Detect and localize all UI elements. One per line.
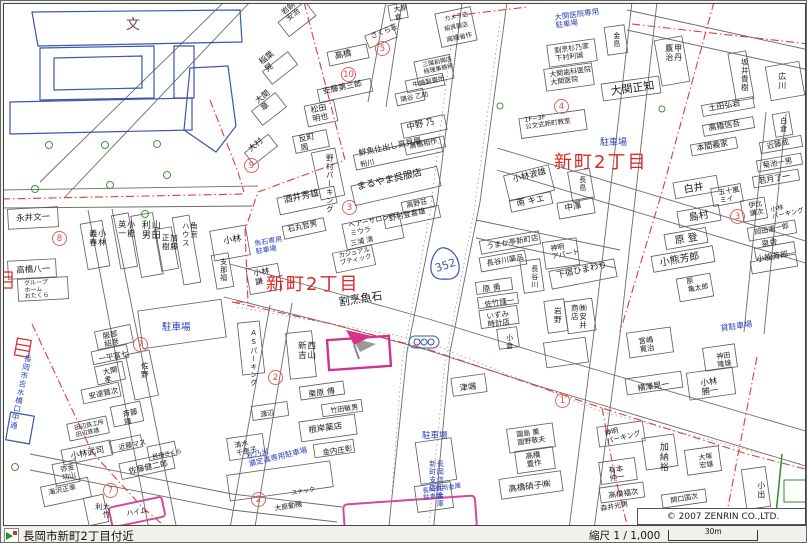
highlighted-building-2 (109, 495, 477, 526)
sidewalk-dots-layer (237, 22, 802, 526)
block-number-badge: 2 (268, 370, 283, 385)
block-number-badge: 4 (554, 99, 569, 114)
scale-indicator: 縮尺 1 / 1,000 30m (589, 527, 758, 543)
block-number-badge: 1 (555, 393, 570, 408)
green-boundary-line (776, 454, 806, 514)
block-number-badge: 9 (244, 158, 259, 173)
scale-label: 縮尺 1 / 1,000 (589, 528, 660, 543)
block-number-badge: 2 (251, 492, 266, 507)
copyright-notice: © 2007 ZENRIN CO.,LTD. (637, 508, 806, 525)
buildings-layer (8, 4, 805, 526)
block-number-badge: 7 (133, 337, 148, 352)
block-number-badge: 8 (52, 231, 67, 246)
public-building-outline (6, 412, 34, 444)
map-canvas: 352 (4, 4, 806, 526)
block-number-badge: 5 (375, 41, 390, 56)
school-building (10, 10, 242, 152)
scale-distance: 30m (669, 527, 757, 536)
route-number: 352 (433, 256, 457, 275)
tree-icons (12, 103, 666, 471)
block-number-badge: 7 (103, 483, 118, 498)
route-352-shield: 352 (431, 248, 459, 279)
map-application-window: 352 文稲葉 晃大関 章大村岩銅 安治高橋安藤第三郎松田 明也反町 周さくら荘… (0, 0, 807, 543)
status-location-text: 長岡市新町2丁目付近 (23, 528, 134, 543)
block-number-badge: 3 (730, 209, 745, 224)
block-number-badge: 10 (341, 67, 356, 82)
map-viewport[interactable]: 352 文稲葉 晃大関 章大村岩銅 安治高橋安藤第三郎松田 明也反町 周さくら荘… (3, 3, 806, 526)
scale-bar: 30m (668, 530, 758, 541)
block-number-badge: 3 (342, 200, 357, 215)
location-marker-icon (4, 528, 19, 543)
